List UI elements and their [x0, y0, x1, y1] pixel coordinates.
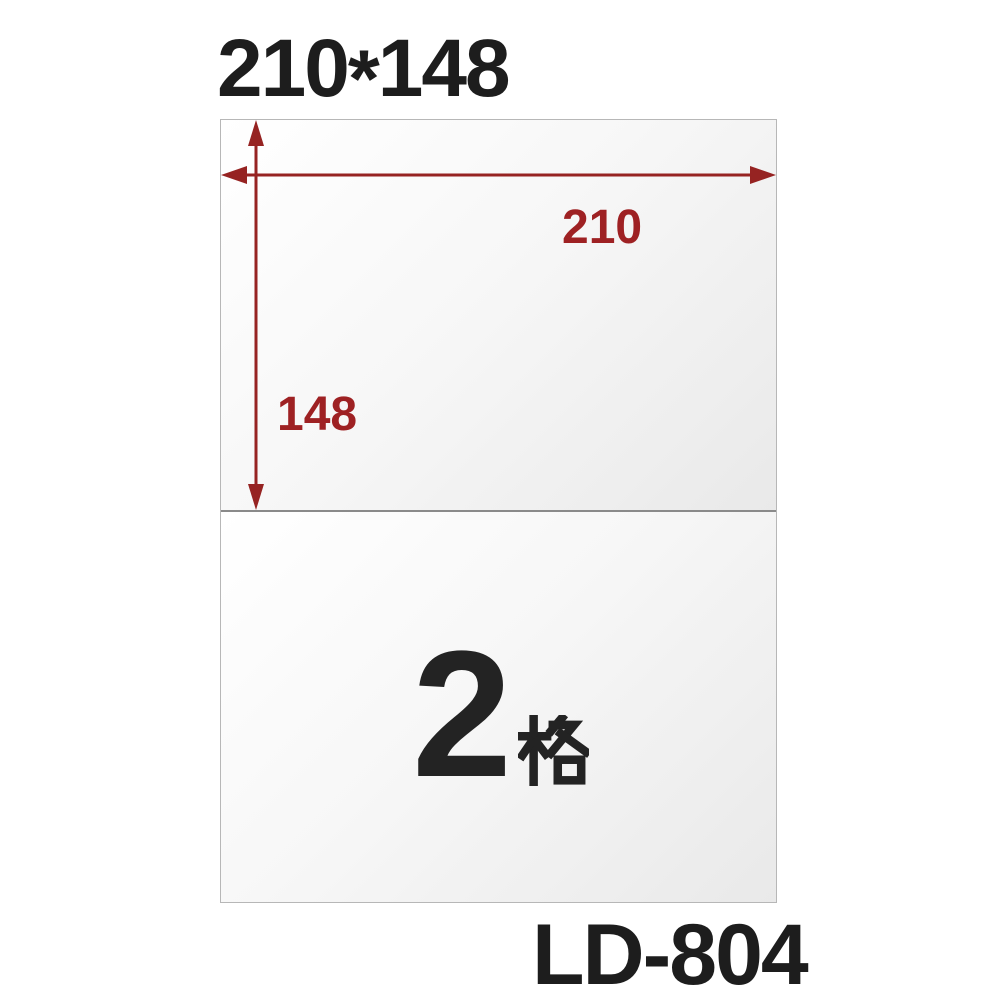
cell-count-number: 2 [412, 625, 512, 805]
cell-unit-text: 格 [0, 0, 1, 1]
height-dimension-label: 148 [277, 391, 357, 439]
width-dimension-label: 210 [562, 204, 642, 252]
label-cell-top [221, 120, 776, 510]
asterisk-separator: * [348, 39, 378, 121]
title-width-value: 210 [217, 23, 348, 114]
label-sheet-spec-image: 210*148 210 148 2 [0, 0, 1000, 1000]
sheet-dimensions-title: 210*148 [217, 28, 509, 110]
title-height-value: 148 [378, 23, 509, 114]
ge-character-glyph [518, 715, 589, 786]
product-code-label: LD-804 [532, 912, 807, 998]
